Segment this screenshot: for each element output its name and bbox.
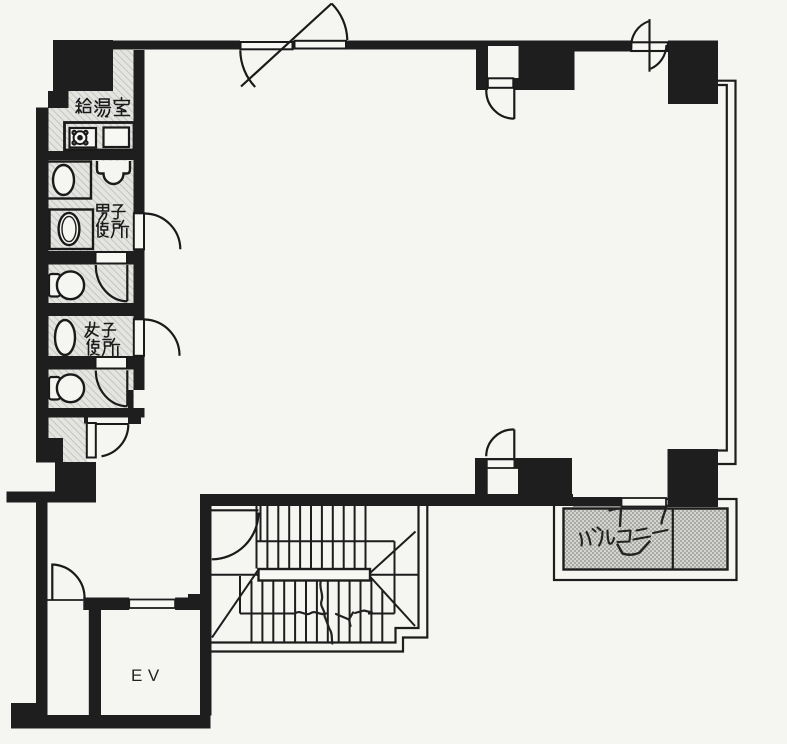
- svg-text:EV: EV: [131, 666, 165, 685]
